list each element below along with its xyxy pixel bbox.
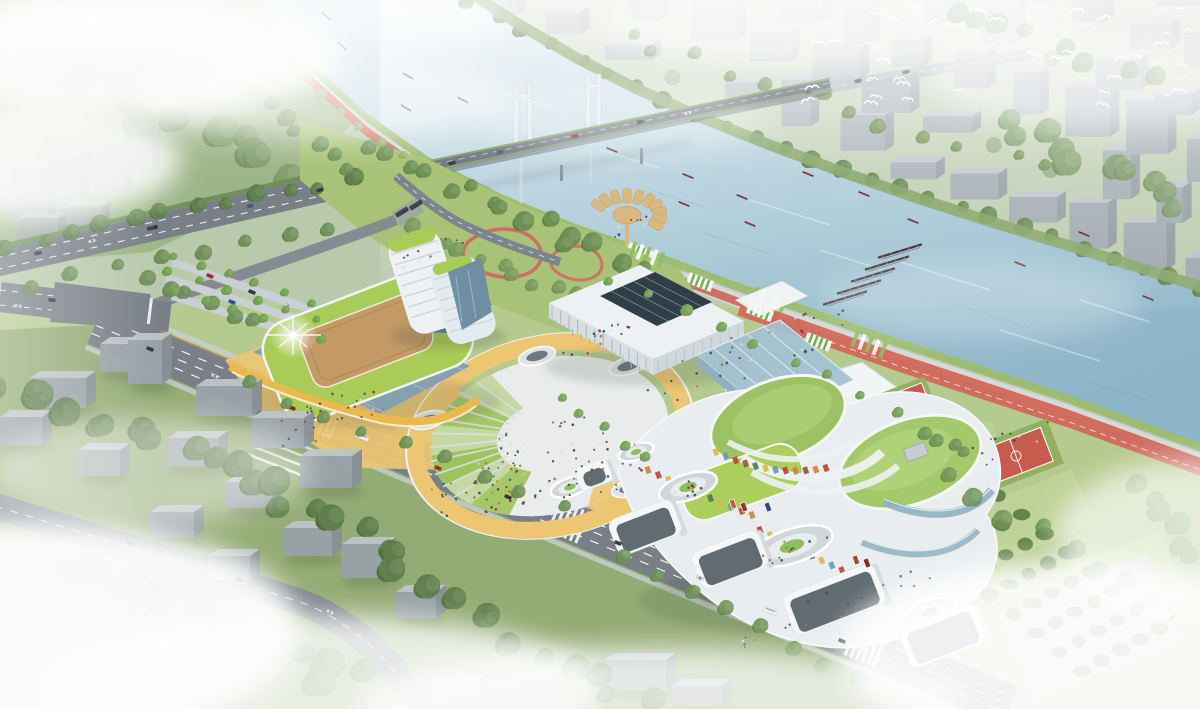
- residential-block: [196, 386, 252, 416]
- person-dot: [477, 463, 479, 465]
- person-dot: [306, 411, 308, 413]
- person-dot: [643, 224, 645, 226]
- tree-cluster-highlight: [290, 228, 299, 237]
- person-dot: [847, 603, 849, 605]
- person-dot: [627, 476, 629, 478]
- person-dot: [498, 438, 500, 440]
- person-dot: [1018, 435, 1020, 437]
- tree-cluster-highlight: [656, 570, 664, 578]
- tree-cluster-highlight: [564, 501, 571, 508]
- rendering-stage: [0, 0, 1200, 709]
- person-dot: [762, 554, 765, 557]
- residential-roof: [252, 411, 314, 418]
- person-dot: [575, 458, 577, 460]
- person-dot: [281, 420, 283, 422]
- person-dot: [523, 473, 525, 475]
- architectural-rendering-canvas: [0, 0, 1200, 709]
- residential-roof: [300, 449, 362, 456]
- tree-cluster-highlight: [173, 253, 178, 258]
- person-dot: [568, 484, 570, 486]
- person-dot: [547, 482, 550, 485]
- person-dot: [624, 485, 626, 487]
- person-dot: [807, 551, 809, 553]
- person-dot: [507, 453, 509, 455]
- tree-cluster-highlight: [232, 305, 238, 311]
- scene-root: [0, 0, 1200, 709]
- person-dot: [571, 443, 573, 445]
- tree-cluster-highlight: [412, 219, 421, 228]
- left-haze: [0, 0, 160, 709]
- person-dot: [792, 547, 794, 549]
- hedge-blob: [1017, 538, 1033, 551]
- person-dot: [354, 405, 356, 407]
- person-dot: [495, 482, 497, 484]
- tree-cluster-highlight: [360, 428, 366, 434]
- person-dot: [372, 391, 375, 394]
- person-dot: [337, 418, 339, 420]
- tree-cluster-highlight: [226, 286, 232, 292]
- tree-cluster-highlight: [484, 471, 492, 479]
- person-dot: [548, 480, 550, 482]
- person-dot: [618, 233, 621, 236]
- person-dot: [664, 392, 666, 394]
- person-dot: [570, 353, 573, 356]
- tree-cluster-highlight: [290, 185, 298, 193]
- person-dot: [861, 597, 863, 599]
- person-dot: [981, 452, 983, 454]
- tree-cluster-highlight: [367, 519, 379, 531]
- person-dot: [475, 482, 478, 485]
- person-dot: [492, 492, 494, 494]
- person-dot: [743, 377, 745, 379]
- tree-cluster-highlight: [311, 300, 316, 305]
- person-dot: [495, 508, 497, 510]
- tree-cluster-highlight: [522, 213, 534, 225]
- top-haze: [0, 0, 1200, 175]
- person-dot: [731, 347, 733, 349]
- tree-cluster-highlight: [316, 316, 320, 320]
- tree-cluster-highlight: [244, 236, 251, 243]
- person-dot: [617, 429, 619, 431]
- person-dot: [811, 348, 814, 351]
- tree-cluster-highlight: [622, 262, 629, 269]
- person-dot: [509, 500, 512, 503]
- person-dot: [994, 437, 997, 440]
- tree-cluster-highlight: [645, 453, 651, 459]
- person-dot: [514, 454, 516, 456]
- person-dot: [638, 467, 640, 469]
- tree-cluster-highlight: [426, 577, 441, 592]
- tree-cluster-highlight: [859, 392, 864, 397]
- person-dot: [498, 502, 500, 504]
- person-dot: [486, 511, 488, 513]
- person-dot: [944, 459, 946, 461]
- person-dot: [992, 459, 994, 461]
- person-dot: [826, 536, 828, 538]
- person-dot: [559, 425, 561, 427]
- person-dot: [692, 486, 694, 488]
- tree-cluster-highlight: [604, 423, 610, 429]
- person-dot: [640, 469, 643, 472]
- person-dot: [900, 585, 902, 587]
- tree-cluster-highlight: [391, 543, 405, 557]
- tree-cluster-highlight: [793, 642, 802, 651]
- tree-cluster-highlight: [328, 507, 344, 523]
- person-dot: [573, 477, 575, 479]
- person-dot: [700, 487, 703, 490]
- tree-cluster-highlight: [249, 376, 257, 384]
- person-dot: [753, 639, 755, 641]
- person-dot: [431, 488, 433, 490]
- person-dot: [509, 442, 511, 444]
- person-dot: [676, 399, 678, 401]
- person-dot: [534, 494, 537, 497]
- person-dot: [295, 429, 297, 431]
- tree-cluster-highlight: [285, 306, 290, 311]
- person-dot: [634, 443, 636, 445]
- person-dot: [512, 462, 514, 464]
- person-dot: [440, 238, 443, 241]
- person-dot: [797, 321, 800, 324]
- person-dot: [794, 317, 797, 320]
- person-dot: [445, 493, 447, 495]
- person-dot: [599, 443, 601, 445]
- person-dot: [805, 624, 807, 626]
- person-dot: [462, 242, 464, 244]
- person-dot: [899, 575, 902, 578]
- person-dot: [1036, 441, 1038, 443]
- tree-cluster-highlight: [486, 611, 497, 622]
- hedge-blob: [998, 549, 1013, 560]
- person-dot: [590, 469, 593, 472]
- person-dot: [809, 554, 811, 556]
- person-dot: [498, 463, 500, 465]
- person-dot: [446, 515, 449, 518]
- person-dot: [749, 359, 751, 361]
- person-dot: [780, 559, 783, 562]
- person-dot: [445, 238, 447, 240]
- tree-cluster-highlight: [211, 297, 220, 306]
- person-dot: [520, 447, 522, 449]
- tree-cluster-highlight: [721, 323, 727, 329]
- person-dot: [564, 421, 566, 423]
- person-dot: [583, 416, 585, 418]
- person-dot: [681, 360, 683, 362]
- person-dot: [490, 506, 493, 509]
- person-dot: [602, 432, 604, 434]
- person-dot: [497, 488, 500, 491]
- tree-cluster-highlight: [453, 589, 466, 602]
- person-dot: [875, 589, 877, 591]
- person-dot: [647, 389, 649, 391]
- pier-segment: [623, 189, 631, 203]
- tree-cluster-highlight: [1171, 201, 1182, 212]
- person-dot: [616, 488, 618, 490]
- person-dot: [622, 463, 624, 465]
- tree-cluster-highlight: [591, 234, 603, 246]
- tree-cluster-highlight: [258, 297, 264, 303]
- person-dot: [514, 464, 516, 466]
- person-dot: [347, 407, 349, 409]
- tree-cluster-highlight: [405, 437, 413, 445]
- tree-cluster-highlight: [648, 290, 653, 295]
- person-dot: [986, 464, 988, 466]
- person-dot: [403, 257, 405, 259]
- tree-cluster-highlight: [183, 287, 191, 295]
- person-dot: [696, 385, 698, 387]
- person-dot: [721, 363, 724, 366]
- person-dot: [465, 492, 467, 494]
- person-dot: [730, 337, 732, 339]
- tree-cluster-highlight: [228, 270, 233, 275]
- person-dot: [356, 400, 358, 402]
- person-dot: [611, 324, 613, 326]
- person-dot: [743, 643, 745, 645]
- person-dot: [516, 470, 518, 472]
- person-dot: [599, 343, 602, 346]
- person-dot: [450, 482, 452, 484]
- tree-cluster-highlight: [444, 451, 452, 459]
- person-dot: [486, 499, 488, 501]
- person-dot: [793, 354, 795, 356]
- person-dot: [341, 395, 343, 397]
- tree-cluster-highlight: [562, 394, 567, 399]
- person-dot: [617, 226, 620, 229]
- tree-cluster-highlight: [1043, 520, 1052, 529]
- person-dot: [810, 547, 813, 550]
- person-dot: [440, 511, 442, 513]
- person-dot: [825, 592, 828, 595]
- person-dot: [800, 330, 803, 333]
- person-dot: [311, 432, 313, 434]
- person-dot: [587, 352, 589, 354]
- person-dot: [790, 548, 792, 550]
- tree-cluster-highlight: [936, 435, 944, 443]
- tree-cluster-highlight: [759, 620, 768, 629]
- person-dot: [569, 494, 571, 496]
- person-dot: [606, 448, 609, 451]
- person-dot: [521, 483, 523, 485]
- tree-cluster-highlight: [284, 289, 289, 294]
- person-dot: [492, 484, 494, 486]
- person-dot: [534, 497, 536, 499]
- person-dot: [304, 421, 306, 423]
- tree-cluster-highlight: [201, 262, 207, 268]
- person-dot: [560, 452, 563, 455]
- person-dot: [709, 352, 712, 355]
- person-dot: [485, 462, 487, 464]
- tree-cluster-highlight: [692, 586, 701, 595]
- person-dot: [417, 250, 419, 252]
- person-dot: [571, 423, 574, 426]
- tree-cluster-highlight: [948, 469, 957, 478]
- person-dot: [719, 375, 722, 378]
- person-dot: [786, 546, 788, 548]
- person-dot: [313, 427, 315, 429]
- person-dot: [740, 343, 742, 345]
- person-dot: [628, 326, 631, 329]
- tree-cluster-highlight: [752, 340, 758, 346]
- tree-cluster-highlight: [963, 448, 969, 454]
- person-dot: [478, 492, 481, 495]
- person-dot: [636, 219, 638, 221]
- person-dot: [1013, 439, 1016, 442]
- person-dot: [364, 393, 366, 395]
- person-dot: [467, 500, 469, 502]
- tree-cluster-highlight: [203, 246, 212, 255]
- tree-cluster-highlight: [623, 551, 632, 560]
- person-dot: [553, 478, 556, 481]
- person-dot: [473, 496, 475, 498]
- tree-cluster-highlight: [511, 269, 519, 277]
- person-dot: [600, 335, 603, 338]
- tree-cluster-highlight: [321, 335, 327, 341]
- person-dot: [502, 461, 504, 463]
- person-dot: [505, 434, 507, 436]
- person-dot: [687, 495, 689, 497]
- person-dot: [497, 467, 499, 469]
- tree-cluster-highlight: [955, 440, 962, 447]
- person-dot: [605, 441, 607, 443]
- person-dot: [319, 402, 322, 405]
- person-dot: [306, 406, 308, 408]
- person-dot: [645, 216, 647, 218]
- tree-cluster-highlight: [263, 315, 269, 321]
- tree-cluster-highlight: [451, 185, 460, 194]
- person-dot: [488, 467, 490, 469]
- person-dot: [768, 331, 770, 333]
- person-dot: [517, 450, 519, 452]
- person-dot: [739, 357, 741, 359]
- tree-cluster-highlight: [897, 408, 903, 414]
- tree-cluster-highlight: [327, 224, 335, 232]
- person-dot: [781, 321, 784, 324]
- person-dot: [593, 332, 596, 335]
- tree-cluster-highlight: [1164, 183, 1177, 196]
- person-dot: [382, 408, 384, 410]
- person-dot: [581, 423, 583, 425]
- person-dot: [882, 584, 884, 586]
- person-dot: [801, 348, 803, 350]
- person-dot: [778, 557, 780, 559]
- person-dot: [331, 393, 334, 396]
- person-dot: [725, 362, 728, 365]
- person-dot: [603, 330, 606, 333]
- person-dot: [614, 236, 616, 238]
- person-dot: [341, 417, 343, 419]
- person-dot: [501, 436, 504, 439]
- person-dot: [327, 434, 329, 436]
- person-dot: [310, 410, 312, 412]
- person-dot: [481, 467, 484, 470]
- person-dot: [788, 550, 791, 553]
- person-dot: [370, 413, 373, 416]
- person-dot: [695, 372, 698, 375]
- person-dot: [558, 461, 560, 463]
- person-dot: [575, 471, 577, 473]
- person-dot: [1047, 421, 1049, 423]
- person-dot: [813, 317, 815, 319]
- person-dot: [617, 324, 619, 326]
- person-dot: [674, 491, 677, 494]
- tree-cluster-highlight: [255, 186, 265, 196]
- person-dot: [729, 351, 731, 353]
- tree-cluster-highlight: [531, 280, 538, 287]
- person-dot: [804, 350, 807, 353]
- tree-cluster-highlight: [390, 559, 406, 575]
- tree-cluster-highlight: [725, 602, 734, 611]
- tree-cluster-highlight: [167, 268, 173, 274]
- person-dot: [560, 422, 562, 424]
- person-dot: [840, 616, 843, 619]
- person-dot: [640, 219, 642, 221]
- person-dot: [288, 438, 291, 441]
- tree-cluster-highlight: [323, 412, 330, 419]
- tree-cluster-highlight: [174, 288, 179, 293]
- person-dot: [539, 490, 541, 492]
- tree-cluster-highlight: [578, 410, 583, 415]
- person-dot: [602, 468, 605, 471]
- person-dot: [588, 477, 591, 480]
- person-dot: [637, 442, 639, 444]
- person-dot: [694, 494, 697, 497]
- person-dot: [745, 637, 747, 639]
- person-dot: [510, 468, 513, 471]
- person-dot: [594, 335, 596, 337]
- pier-gangway: [625, 221, 629, 249]
- person-dot: [588, 460, 590, 462]
- person-dot: [573, 449, 576, 452]
- person-dot: [804, 313, 806, 315]
- person-dot: [562, 352, 564, 354]
- person-dot: [505, 486, 507, 488]
- person-dot: [600, 491, 602, 493]
- tree-cluster-highlight: [563, 237, 573, 247]
- person-dot: [783, 541, 785, 543]
- person-dot: [1049, 433, 1051, 435]
- person-dot: [473, 482, 476, 485]
- person-dot: [522, 502, 525, 505]
- person-dot: [629, 464, 632, 467]
- person-dot: [314, 440, 317, 443]
- person-dot: [310, 407, 312, 409]
- person-dot: [855, 606, 857, 608]
- residential-side: [162, 333, 172, 384]
- person-dot: [789, 624, 791, 626]
- tree-cluster-highlight: [161, 251, 170, 260]
- person-dot: [456, 239, 458, 241]
- person-dot: [598, 329, 601, 332]
- tree-cluster-highlight: [625, 442, 631, 448]
- person-dot: [552, 460, 554, 462]
- person-dot: [455, 498, 457, 500]
- person-dot: [402, 266, 404, 268]
- tree-cluster-highlight: [253, 279, 258, 284]
- person-dot: [441, 495, 443, 497]
- tree-cluster-highlight: [686, 305, 693, 312]
- person-dot: [500, 447, 503, 450]
- tree-cluster-highlight: [795, 359, 800, 364]
- person-dot: [509, 479, 511, 481]
- person-dot: [601, 461, 603, 463]
- flare-core: [290, 332, 297, 339]
- person-dot: [692, 490, 695, 493]
- person-dot: [593, 449, 595, 451]
- tree-cluster-highlight: [924, 428, 932, 436]
- person-dot: [807, 601, 809, 603]
- person-dot: [359, 399, 362, 402]
- tree-cluster-highlight: [456, 243, 465, 252]
